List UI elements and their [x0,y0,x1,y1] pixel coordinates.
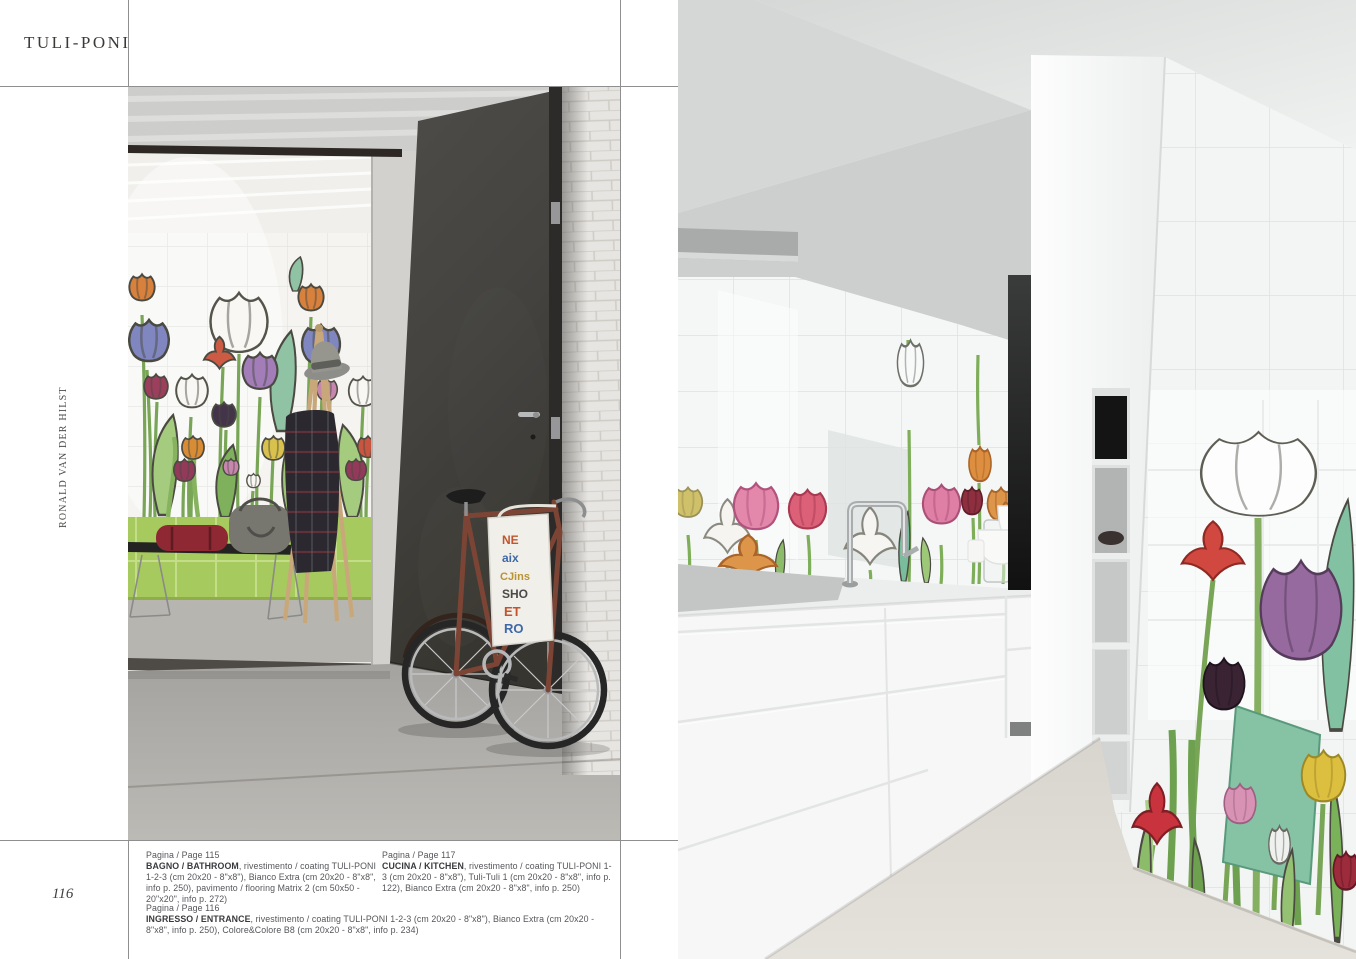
caption-kitchen: Pagina / Page 117 CUCINA / KITCHEN, rive… [382,850,614,894]
catalog-spread: TULI-PONI RONALD VAN DER HILST 116 Pagin… [0,0,1356,959]
tote-letters: SHO [502,587,528,601]
white-tulip-outline [1201,432,1316,516]
tv-screen [1095,396,1127,460]
tote-bag: NE aix CJins SHO ET RO [488,506,556,646]
caption-entrance-pageref: Pagina / Page 116 [146,903,219,913]
door-hinge-icon [551,202,560,224]
tote-letters: ET [504,604,521,619]
caption-bathroom-pageref: Pagina / Page 115 [146,850,219,860]
photo-entrance: NE aix CJins SHO ET RO [128,87,620,840]
tote-letters: CJins [500,571,530,583]
yellow-tulip [1302,750,1345,801]
plum-tulip [1203,658,1244,709]
caption-bathroom: Pagina / Page 115 BAGNO / BATHROOM, rive… [146,850,382,905]
extractor-hood [678,228,798,262]
caption-entrance: Pagina / Page 116 INGRESSO / ENTRANCE, r… [146,903,618,936]
photo-kitchen [678,0,1356,959]
caption-bathroom-label: BAGNO / BATHROOM [146,861,239,871]
tote-letters: aix [502,551,519,565]
keyhole-icon [531,435,536,440]
purple-tulip [1261,561,1342,659]
kitchen-photo-art [678,0,1356,959]
pink-tulip [734,483,778,529]
caption-kitchen-label: CUCINA / KITCHEN [382,861,464,871]
red-blanket-roll [156,525,228,551]
entrance-photo-art: NE aix CJins SHO ET RO [128,87,620,840]
caption-kitchen-pageref: Pagina / Page 117 [382,850,455,860]
dark-bowl [1098,531,1124,545]
grid-rule-vertical-right [620,0,621,959]
designer-name-vertical: RONALD VAN DER HILST [58,396,69,528]
door-hinge-icon [551,417,560,439]
white-brick-wall [562,87,620,777]
grid-rule-horizontal-bottom [0,840,678,841]
tote-letters: RO [504,621,524,636]
caption-entrance-label: INGRESSO / ENTRANCE [146,914,251,924]
collection-title: TULI-PONI [24,33,131,53]
page-number: 116 [52,886,73,903]
tote-letters: NE [502,533,519,547]
dark-recess [1008,275,1031,590]
gray-duffel-bag [229,499,291,553]
